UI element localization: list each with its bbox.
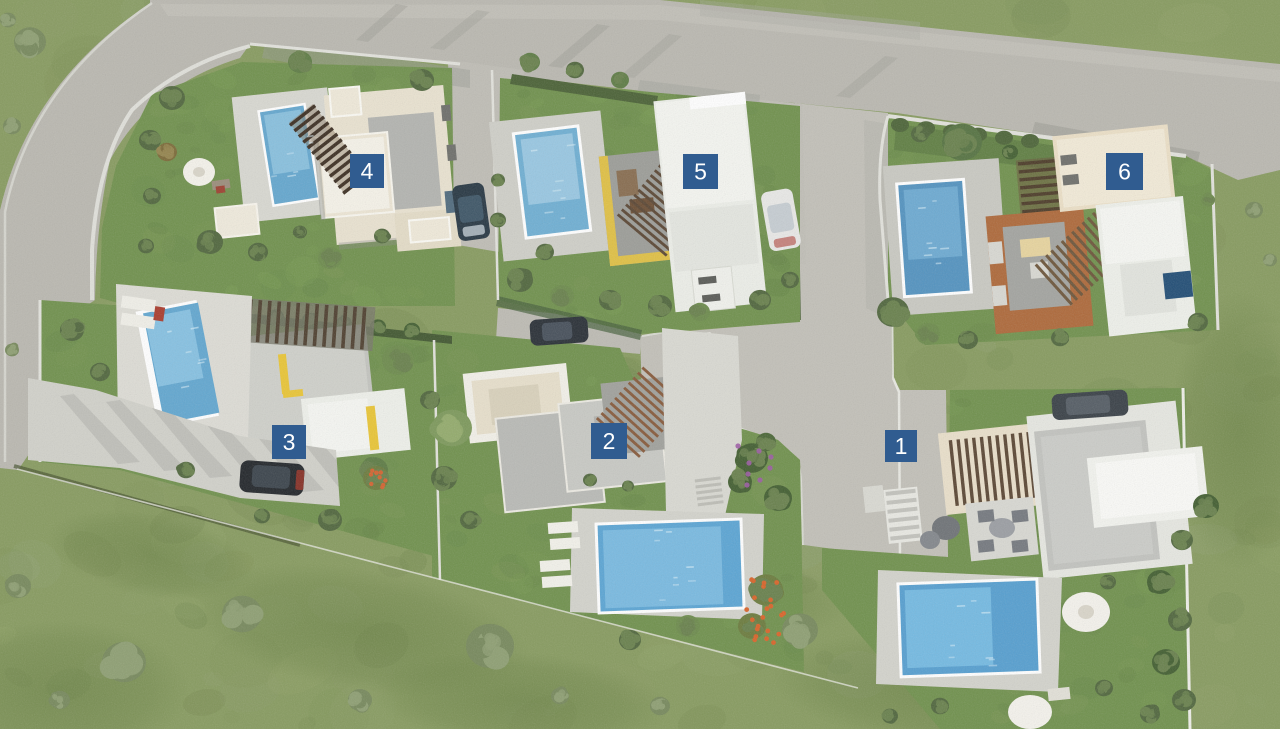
svg-text:2: 2 — [603, 428, 616, 454]
svg-text:6: 6 — [1118, 159, 1131, 185]
svg-text:5: 5 — [694, 159, 707, 185]
svg-text:3: 3 — [283, 429, 296, 455]
svg-text:1: 1 — [895, 433, 908, 459]
svg-text:4: 4 — [361, 158, 374, 184]
